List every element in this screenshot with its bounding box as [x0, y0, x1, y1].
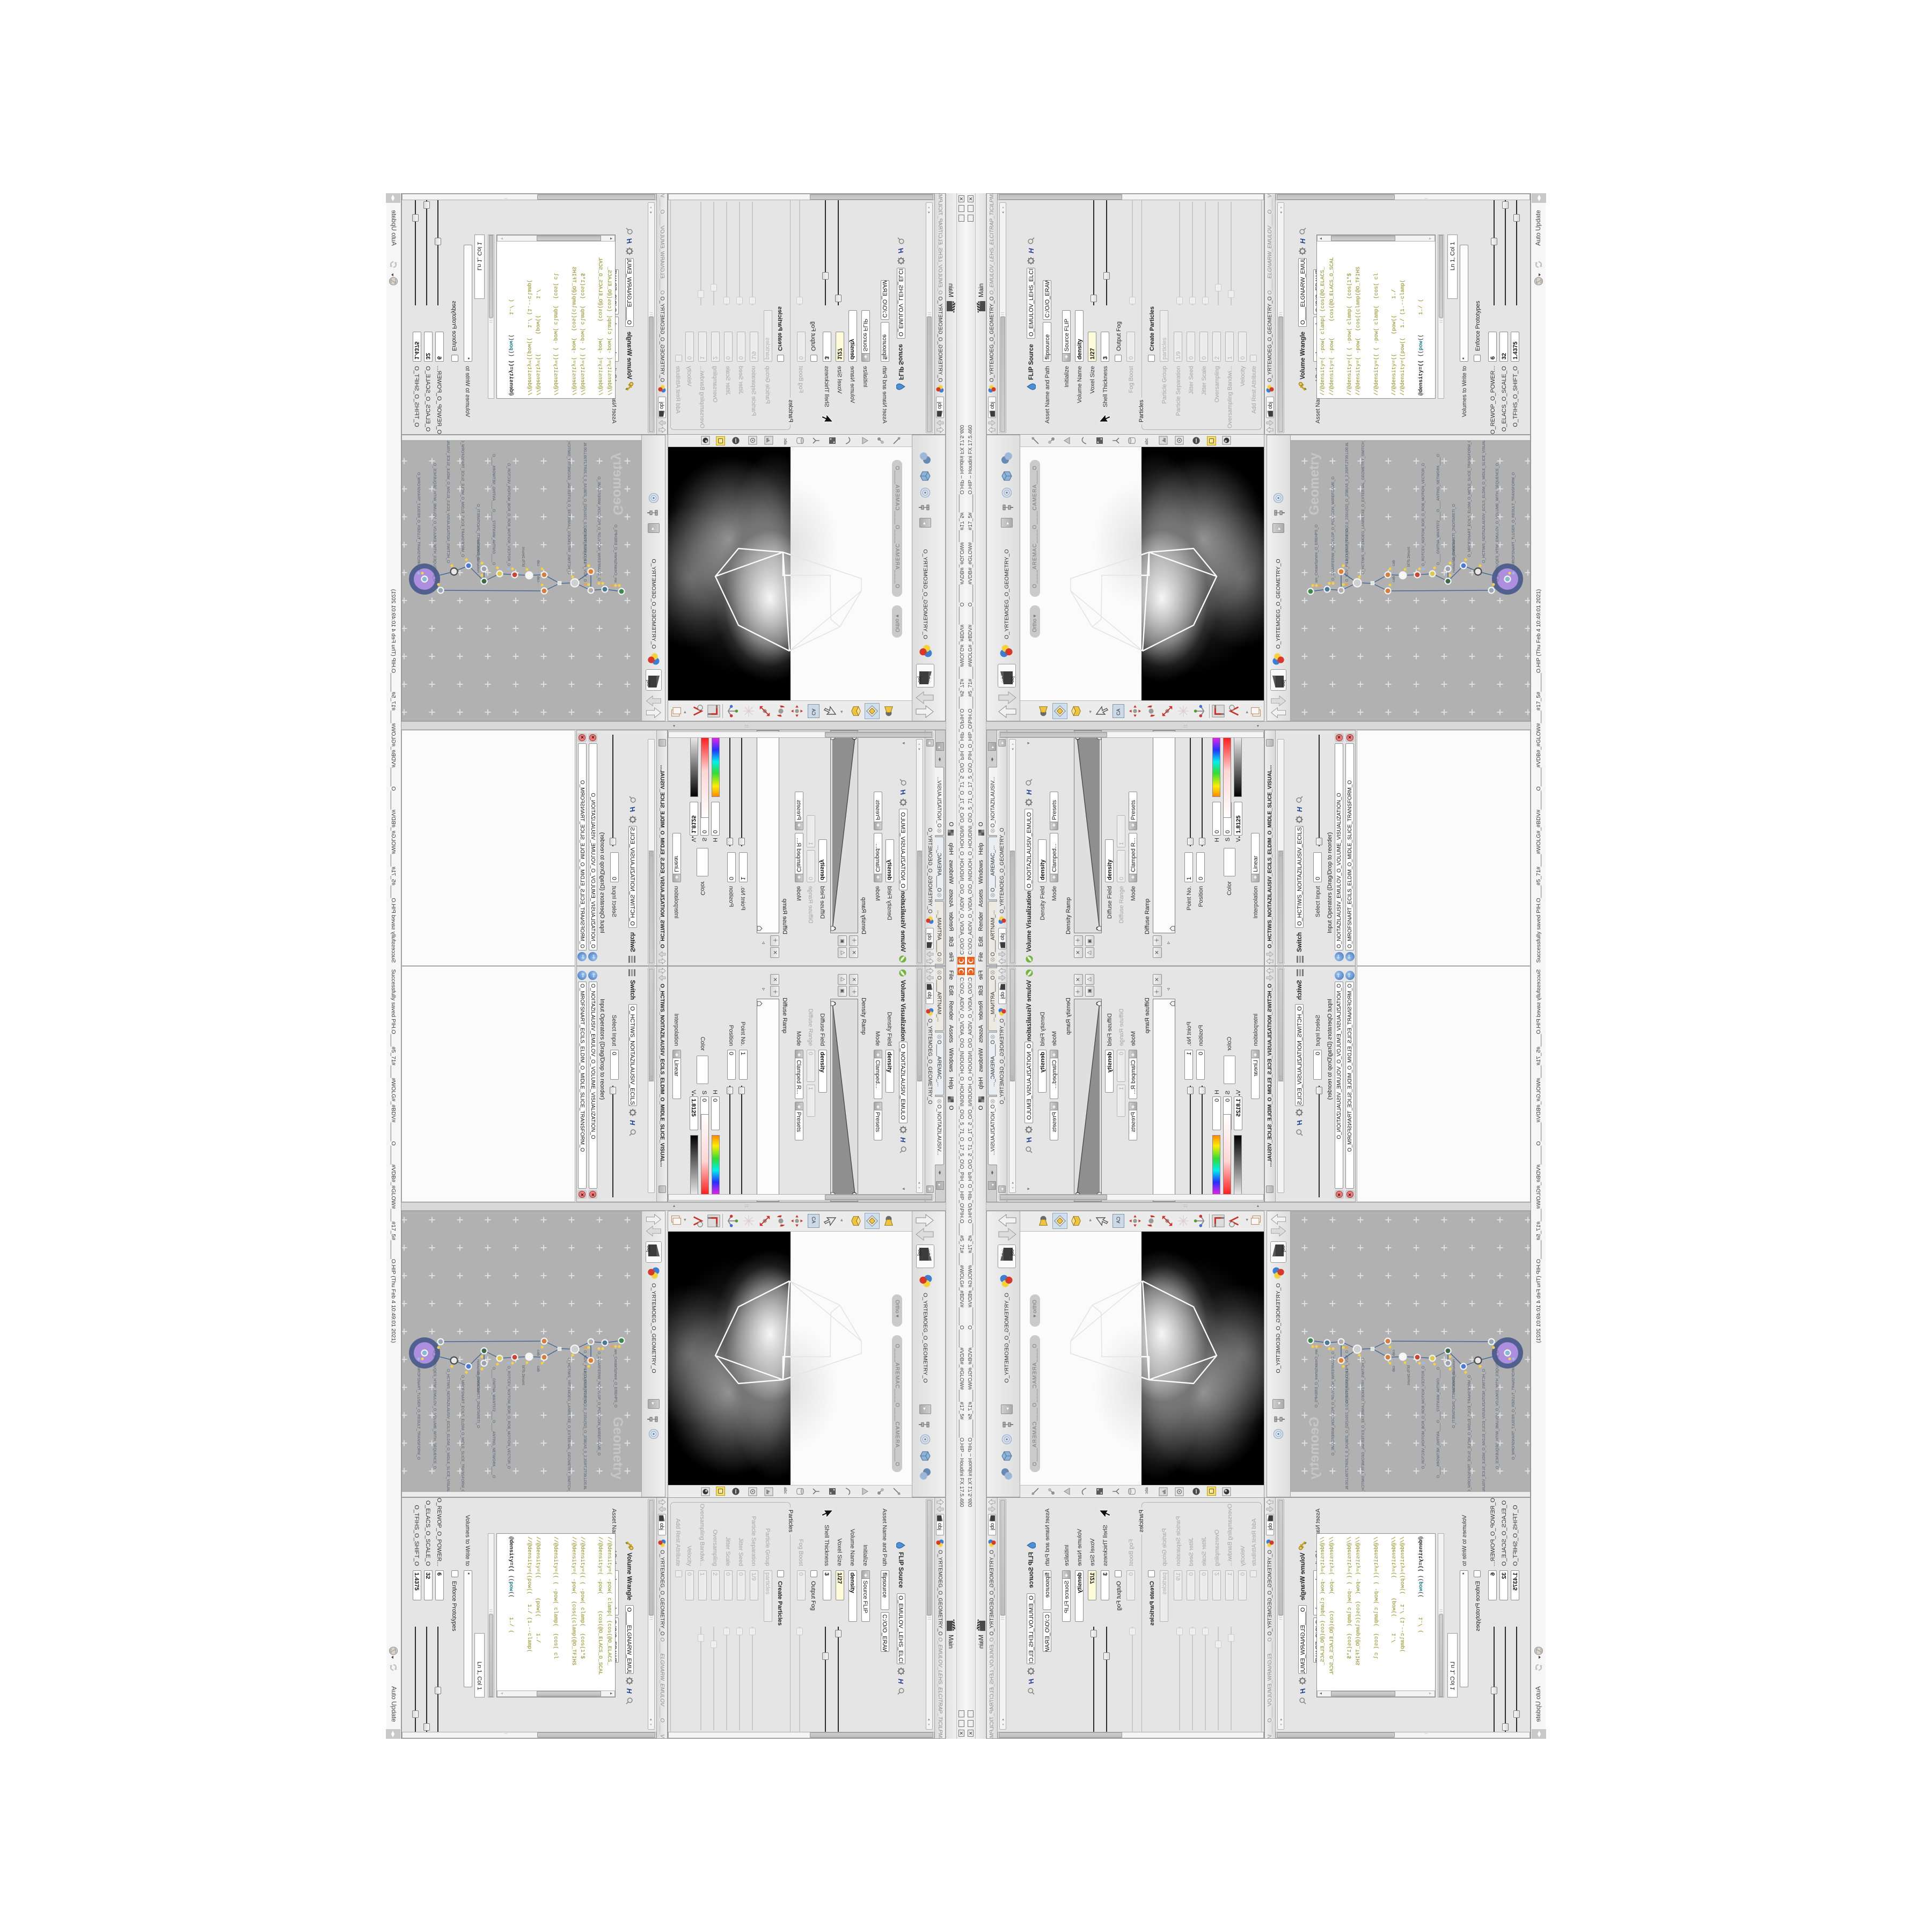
- svg-text:O_ECNEUQES_HTIW_EMULOV_O_VOLUM: O_ECNEUQES_HTIW_EMULOV_O_VOLUME_WITH_SEQ…: [433, 1350, 436, 1469]
- svg-text:bf7b.2eruos: bf7b.2eruos: [521, 547, 525, 567]
- svg-text:am_CreateSphere_O_EREHPS_O: am_CreateSphere_O_EREHPS_O: [1315, 1349, 1319, 1408]
- svg-text:cab: cab: [536, 560, 540, 566]
- svg-text:cab: cab: [1392, 576, 1396, 582]
- svg-text:O_ROTCEV_NOITOM_BOR_O_ROB_MOTI: O_ROTCEV_NOITOM_BOR_O_ROB_MOTION_VECTOR_…: [507, 1366, 510, 1469]
- svg-text:O_HCTIWS_NOITAZILAUSIV_ECILS_E: O_HCTIWS_NOITAZILAUSIV_ECILS_ELDIM_O_MID…: [446, 441, 450, 563]
- svg-text:O_ROTCEV_NOITOM_BOR_O_ROB_MOTI: O_ROTCEV_NOITOM_BOR_O_ROB_MOTION_VECTOR_…: [507, 463, 510, 566]
- svg-text:O_MROFSNART_ECILS_ELDIM_O_MIDL: O_MROFSNART_ECILS_ELDIM_O_MIDLE_SLICE_TR…: [460, 441, 464, 557]
- svg-text:O____GNITNA_WANT572____O____AN: O____GNITNA_WANT572____O____ANTING_NETWO…: [1437, 1367, 1440, 1479]
- svg-text:O_ECNEUQES_HTIW_EMULOV_O_VOLUM: O_ECNEUQES_HTIW_EMULOV_O_VOLUME_WITH_SEQ…: [1496, 463, 1499, 582]
- svg-text:O_EMARFERIW_NOGYLOP_O_POLYGON_: O_EMARFERIW_NOGYLOP_O_POLYGON_WIREFRAME_…: [597, 1351, 601, 1456]
- svg-text:O_HCTIWS_NOITAZILAUSIV_ECILS_E: O_HCTIWS_NOITAZILAUSIV_ECILS_ELDIM_O_MID…: [1482, 1369, 1486, 1491]
- svg-text:O_ROTCEV_NOITOM_BOR_O_ROB_MOTI: O_ROTCEV_NOITOM_BOR_O_ROB_MOTION_VECTOR_…: [1422, 463, 1425, 566]
- svg-text:O_MROFSNART_ECILS_ELDIM_O_MIDL: O_MROFSNART_ECILS_ELDIM_O_MIDLE_SLICE_TR…: [460, 1375, 464, 1491]
- svg-text:O_MROFSNART_ECILS_ELDIM_O_MIDL: O_MROFSNART_ECILS_ELDIM_O_MIDLE_SLICE_TR…: [1468, 1375, 1472, 1491]
- svg-text:O____GNITNA_WANT572____O____AN: O____GNITNA_WANT572____O____ANTING_NETWO…: [1437, 453, 1440, 565]
- svg-text:LB0.MDE,93T2,TRD(2,0_23SU(52)_: LB0.MDE,93T2,TRD(2,0_23SU(52)_O_2/3B(A5_…: [1345, 1369, 1349, 1490]
- svg-text:O_SNOITARETI_2NOITARETI_O: O_SNOITARETI_2NOITARETI_O: [1452, 1372, 1456, 1428]
- svg-text:Geometry: Geometry: [1307, 1417, 1322, 1480]
- svg-text:am_CreateSphere_O_EREHPS_O: am_CreateSphere_O_EREHPS_O: [613, 524, 617, 583]
- svg-text:Geometry: Geometry: [1307, 452, 1322, 515]
- svg-text:bf7b.2eruos: bf7b.2eruos: [1407, 547, 1411, 567]
- svg-text:O_SNOITARETI_2NOITARETI_O: O_SNOITARETI_2NOITARETI_O: [476, 1372, 480, 1428]
- svg-text:O_MROFSNART_TLUSER_O_RESULT_TR: O_MROFSNART_TLUSER_O_RESULT_TRANSFORM_O: [416, 472, 420, 570]
- svg-text:cab: cab: [1392, 560, 1396, 566]
- svg-text:O_ECNEUQES_HTIW_EMULOV_O_VOLUM: O_ECNEUQES_HTIW_EMULOV_O_VOLUME_WITH_SEQ…: [1496, 1350, 1499, 1469]
- svg-text:O_ROTCEV_NOITOM_BOR_O_ROB_MOTI: O_ROTCEV_NOITOM_BOR_O_ROB_MOTION_VECTOR_…: [1422, 1366, 1425, 1469]
- svg-text:bf7b.2eruos: bf7b.2eruos: [521, 1365, 525, 1385]
- svg-text:O_EMARFERIW_NOGYLOP_O_POLYGON_: O_EMARFERIW_NOGYLOP_O_POLYGON_WIREFRAME_…: [1331, 1351, 1335, 1456]
- svg-text:O____GNITNA_WANT572____O____AN: O____GNITNA_WANT572____O____ANTING_NETWO…: [492, 453, 495, 565]
- svg-text:Geometry: Geometry: [610, 452, 625, 515]
- svg-text:O_MROFSNART_TLUSER_O_RESULT_TR: O_MROFSNART_TLUSER_O_RESULT_TRANSFORM_O: [1512, 472, 1516, 570]
- svg-text:O_EMARFERIW_NOGYLOP_O_POLYGON_: O_EMARFERIW_NOGYLOP_O_POLYGON_WIREFRAME_…: [1331, 476, 1335, 581]
- svg-text:Geometry: Geometry: [610, 1417, 625, 1480]
- svg-text:LB0.MDE,93T2,TRD(2,0_23SU(52)_: LB0.MDE,93T2,TRD(2,0_23SU(52)_O_2/3B(A5_…: [583, 442, 587, 563]
- svg-text:cab: cab: [536, 1350, 540, 1356]
- svg-text:O_MROFSNART_ECILS_ELDIM_O_MIDL: O_MROFSNART_ECILS_ELDIM_O_MIDLE_SLICE_TR…: [1468, 441, 1472, 557]
- svg-text:O_HCTIWS_YRTEMOEG_LANRETXE_O_E: O_HCTIWS_YRTEMOEG_LANRETXE_O_EXTERNAL_GE…: [567, 441, 570, 574]
- svg-text:O_SNOITARETI_2NOITARETI_O: O_SNOITARETI_2NOITARETI_O: [476, 504, 480, 560]
- svg-text:LB0.MDE,93T2,TRD(2,0_23SU(52)_: LB0.MDE,93T2,TRD(2,0_23SU(52)_O_2/3B(A5_…: [583, 1369, 587, 1490]
- svg-text:O_SNOITARETI_2NOITARETI_O: O_SNOITARETI_2NOITARETI_O: [1452, 504, 1456, 560]
- svg-text:O_EMARFERIW_NOGYLOP_O_POLYGON_: O_EMARFERIW_NOGYLOP_O_POLYGON_WIREFRAME_…: [597, 476, 601, 581]
- svg-text:O_MROFSNART_TLUSER_O_RESULT_TR: O_MROFSNART_TLUSER_O_RESULT_TRANSFORM_O: [1512, 1362, 1516, 1460]
- svg-text:O_HCTIWS_NOITAZILAUSIV_ECILS_E: O_HCTIWS_NOITAZILAUSIV_ECILS_ELDIM_O_MID…: [1482, 441, 1486, 563]
- svg-text:cab: cab: [536, 576, 540, 582]
- svg-text:cab: cab: [1392, 1366, 1396, 1372]
- svg-text:O____GNITNA_WANT572____O____AN: O____GNITNA_WANT572____O____ANTING_NETWO…: [492, 1367, 495, 1479]
- svg-text:cab: cab: [536, 1366, 540, 1372]
- svg-text:O_MROFSNART_TLUSER_O_RESULT_TR: O_MROFSNART_TLUSER_O_RESULT_TRANSFORM_O: [416, 1362, 420, 1460]
- svg-text:bf7b.2eruos: bf7b.2eruos: [1407, 1365, 1411, 1385]
- svg-text:am_CreateSphere_O_EREHPS_O: am_CreateSphere_O_EREHPS_O: [613, 1349, 617, 1408]
- svg-text:O_ECNEUQES_HTIW_EMULOV_O_VOLUM: O_ECNEUQES_HTIW_EMULOV_O_VOLUME_WITH_SEQ…: [433, 463, 436, 582]
- svg-text:O_HCTIWS_YRTEMOEG_LANRETXE_O_E: O_HCTIWS_YRTEMOEG_LANRETXE_O_EXTERNAL_GE…: [1362, 441, 1365, 574]
- svg-text:LB0.MDE,93T2,TRD(2,0_23SU(52)_: LB0.MDE,93T2,TRD(2,0_23SU(52)_O_2/3B(A5_…: [1345, 442, 1349, 563]
- svg-text:O_HCTIWS_NOITAZILAUSIV_ECILS_E: O_HCTIWS_NOITAZILAUSIV_ECILS_ELDIM_O_MID…: [446, 1369, 450, 1491]
- svg-text:am_CreateSphere_O_EREHPS_O: am_CreateSphere_O_EREHPS_O: [1315, 524, 1319, 583]
- svg-text:O_HCTIWS_YRTEMOEG_LANRETXE_O_E: O_HCTIWS_YRTEMOEG_LANRETXE_O_EXTERNAL_GE…: [1362, 1358, 1365, 1491]
- svg-text:O_HCTIWS_YRTEMOEG_LANRETXE_O_E: O_HCTIWS_YRTEMOEG_LANRETXE_O_EXTERNAL_GE…: [567, 1358, 570, 1491]
- svg-text:cab: cab: [1392, 1350, 1396, 1356]
